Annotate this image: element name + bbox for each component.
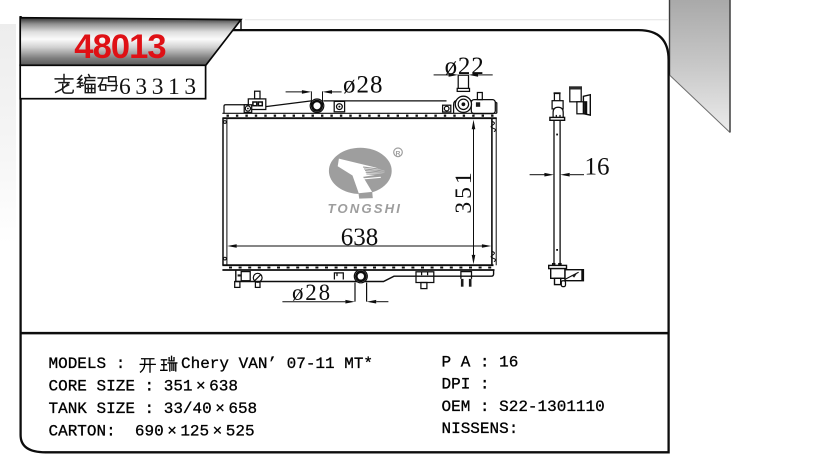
svg-text:351: 351 — [451, 169, 477, 213]
svg-text:CORE SIZE : 351×638: CORE SIZE : 351×638 — [49, 378, 238, 396]
svg-text:TANK SIZE : 33/40×658: TANK SIZE : 33/40×658 — [49, 400, 258, 418]
svg-text:P A : 16: P A : 16 — [442, 354, 519, 372]
svg-text:MODELS :: MODELS : — [49, 355, 135, 373]
svg-text:R: R — [396, 150, 401, 157]
svg-text:Chery VAN’ 07-11 MT*: Chery VAN’ 07-11 MT* — [181, 355, 373, 373]
svg-text:48013: 48013 — [74, 28, 165, 66]
svg-text:TONGSHI: TONGSHI — [328, 201, 403, 216]
svg-text:ø22: ø22 — [445, 53, 485, 80]
svg-text:63313: 63313 — [119, 74, 201, 100]
svg-text:16: 16 — [585, 154, 610, 181]
svg-text:638: 638 — [341, 224, 379, 251]
svg-text:NISSENS:: NISSENS: — [442, 420, 519, 438]
svg-text:ø28: ø28 — [292, 280, 332, 305]
svg-text:ø28: ø28 — [343, 72, 384, 99]
svg-text:DPI :: DPI : — [442, 375, 490, 393]
svg-text:OEM : S22-1301110: OEM : S22-1301110 — [442, 398, 605, 416]
svg-text:CARTON: 690×125×525: CARTON: 690×125×525 — [49, 423, 255, 441]
